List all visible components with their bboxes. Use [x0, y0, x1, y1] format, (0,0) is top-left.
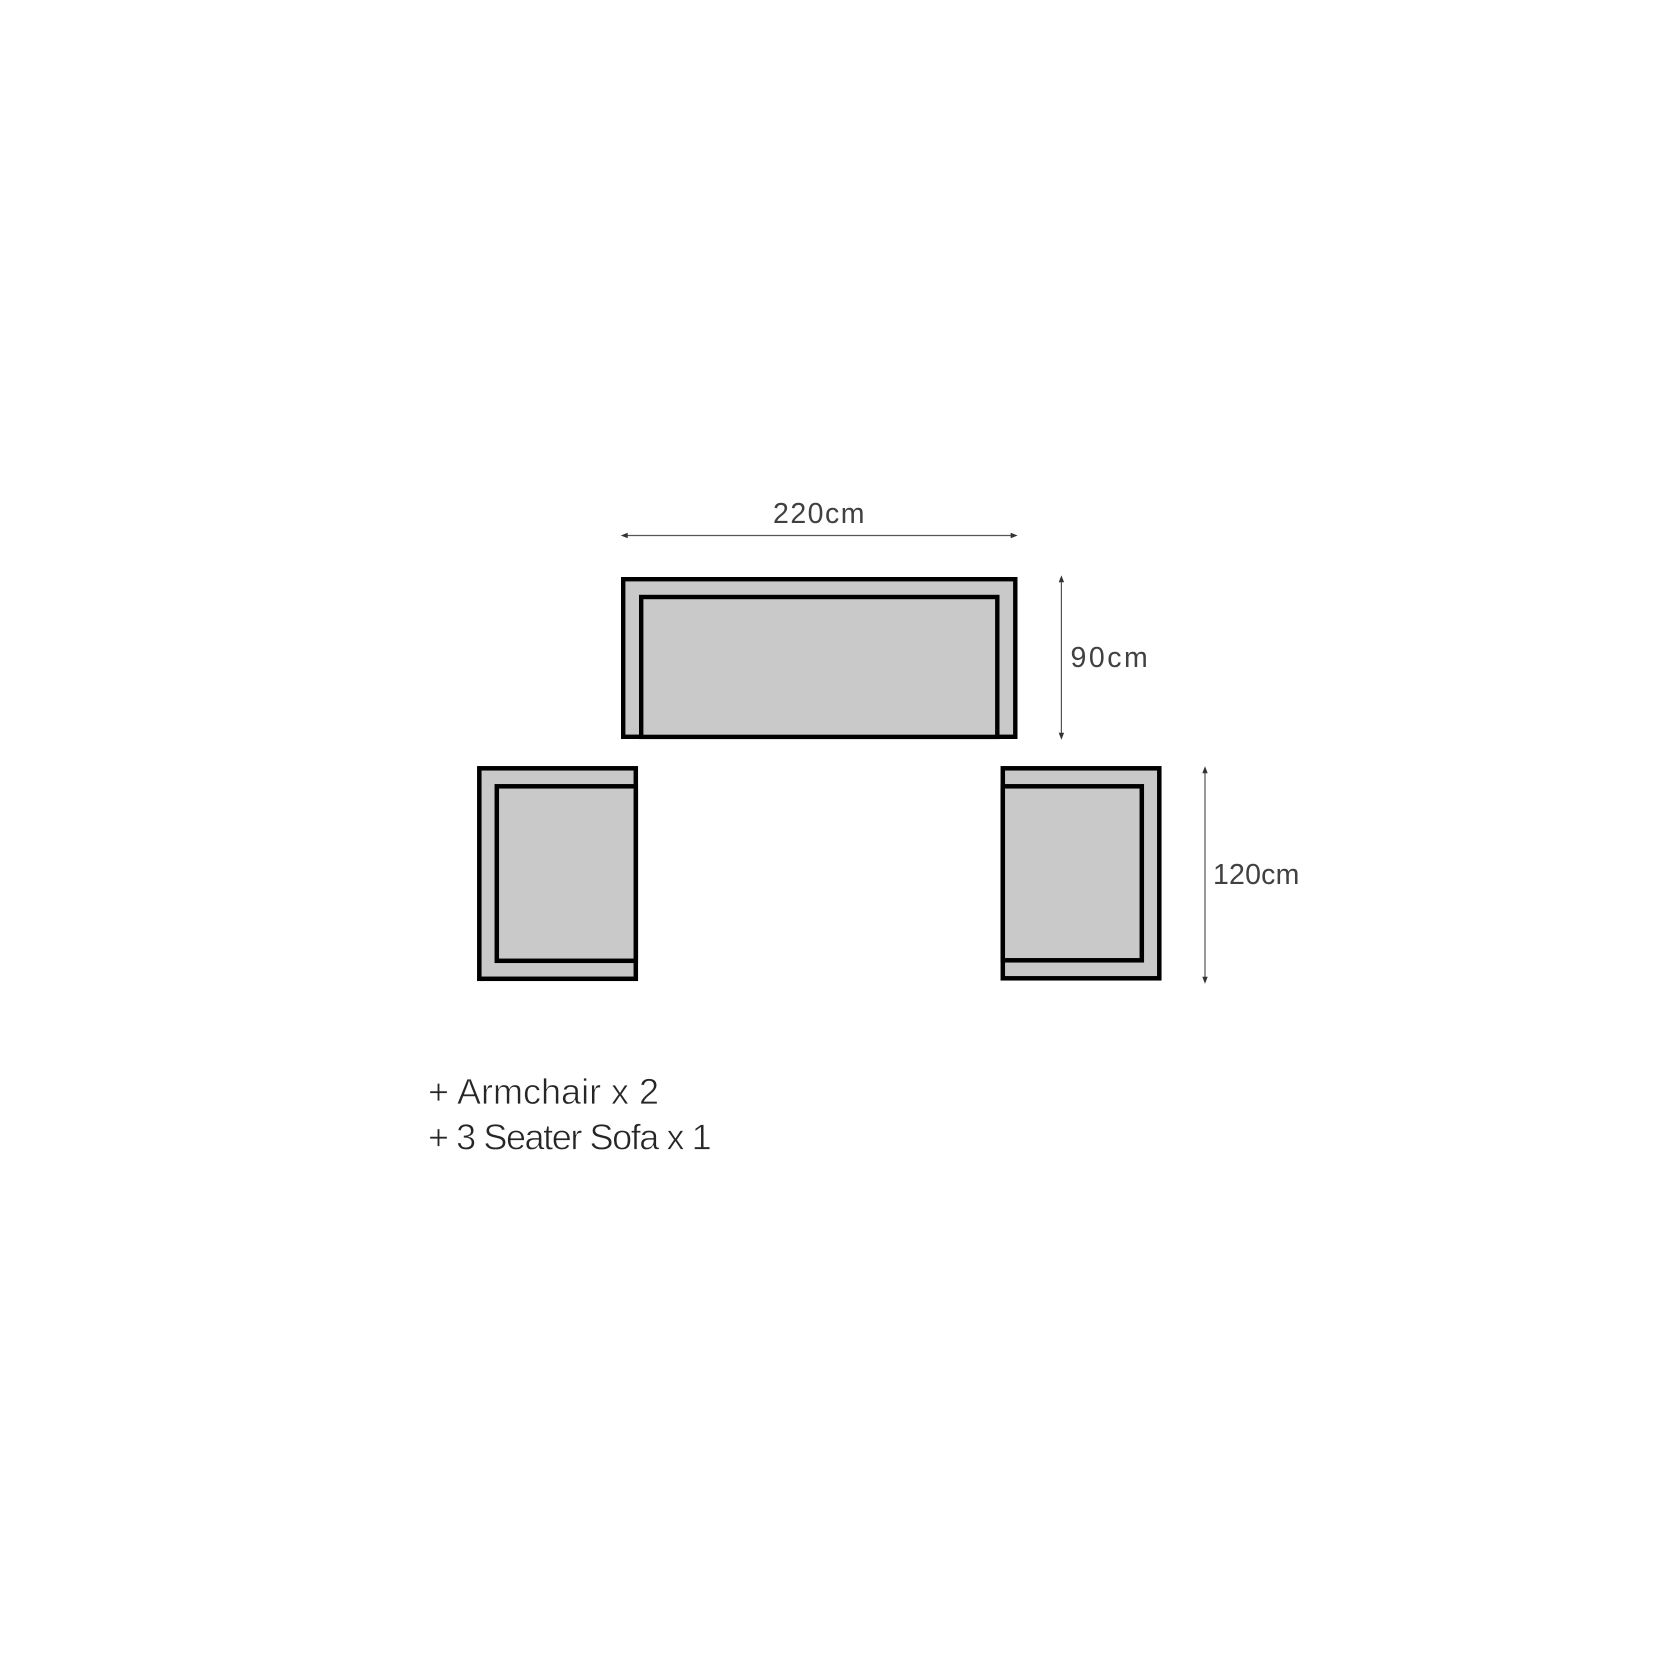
svg-text:+ Armchair x 2: + Armchair x 2 — [428, 1071, 659, 1112]
svg-text:+ 3 Seater Sofa x 1: + 3 Seater Sofa x 1 — [428, 1117, 711, 1158]
svg-text:220cm: 220cm — [773, 498, 866, 530]
svg-text:90cm: 90cm — [1071, 642, 1151, 674]
svg-text:120cm: 120cm — [1213, 859, 1300, 891]
